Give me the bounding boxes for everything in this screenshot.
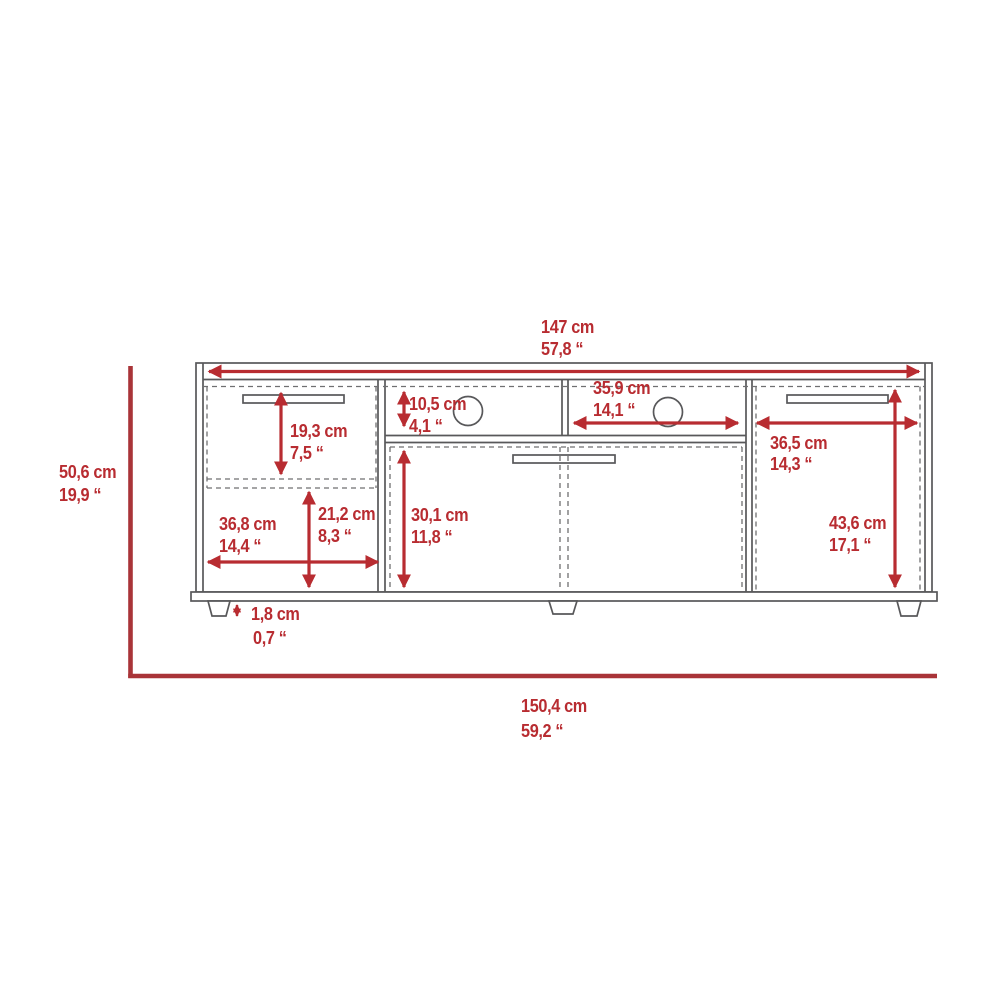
foot-right	[897, 601, 921, 616]
label-open-shelf-height-cm: 10,5 cm	[409, 393, 466, 414]
label-overall-height-cm: 50,6 cm	[59, 461, 116, 482]
label-right-door-height-cm: 43,6 cm	[829, 512, 886, 533]
label-foot-height-in: 0,7 “	[253, 627, 287, 648]
label-left-compartment-height-in: 8,3 “	[318, 525, 352, 546]
label-overall-height-in: 19,9 “	[59, 484, 101, 505]
label-foot-height-cm: 1,8 cm	[251, 603, 300, 624]
label-left-drawer-height-in: 7,5 “	[290, 442, 324, 463]
center-door-handle	[513, 455, 615, 463]
label-open-shelf-height-in: 4,1 “	[409, 415, 443, 436]
label-overall-footprint-width-in: 59,2 “	[521, 720, 563, 741]
foot-left	[208, 601, 230, 616]
label-left-compartment-width-in: 14,4 “	[219, 535, 261, 556]
tv-stand-drawing: 147 cm 57,8 “ 35,9 cm 14,1 “ 10,5 cm 4,1…	[0, 0, 1000, 1000]
label-overall-width-cm: 147 cm	[541, 316, 594, 337]
left-drawer-handle	[243, 395, 344, 403]
dimension-diagram: 147 cm 57,8 “ 35,9 cm 14,1 “ 10,5 cm 4,1…	[0, 0, 1000, 1000]
foot-middle	[549, 601, 577, 614]
label-open-shelf-width-in: 14,1 “	[593, 399, 635, 420]
label-right-door-width-in: 14,3 “	[770, 453, 812, 474]
right-door-handle	[787, 395, 888, 403]
label-left-drawer-height-cm: 19,3 cm	[290, 420, 347, 441]
label-open-shelf-width-cm: 35,9 cm	[593, 377, 650, 398]
label-center-cabinet-height-cm: 30,1 cm	[411, 504, 468, 525]
cabinet-outline	[191, 363, 937, 616]
label-overall-width-in: 57,8 “	[541, 338, 583, 359]
base-plinth	[191, 592, 937, 601]
label-left-compartment-height-cm: 21,2 cm	[318, 503, 375, 524]
label-right-door-width-cm: 36,5 cm	[770, 432, 827, 453]
label-overall-footprint-width-cm: 150,4 cm	[521, 695, 587, 716]
label-center-cabinet-height-in: 11,8 “	[411, 526, 452, 547]
label-right-door-height-in: 17,1 “	[829, 534, 871, 555]
label-left-compartment-width-cm: 36,8 cm	[219, 513, 276, 534]
